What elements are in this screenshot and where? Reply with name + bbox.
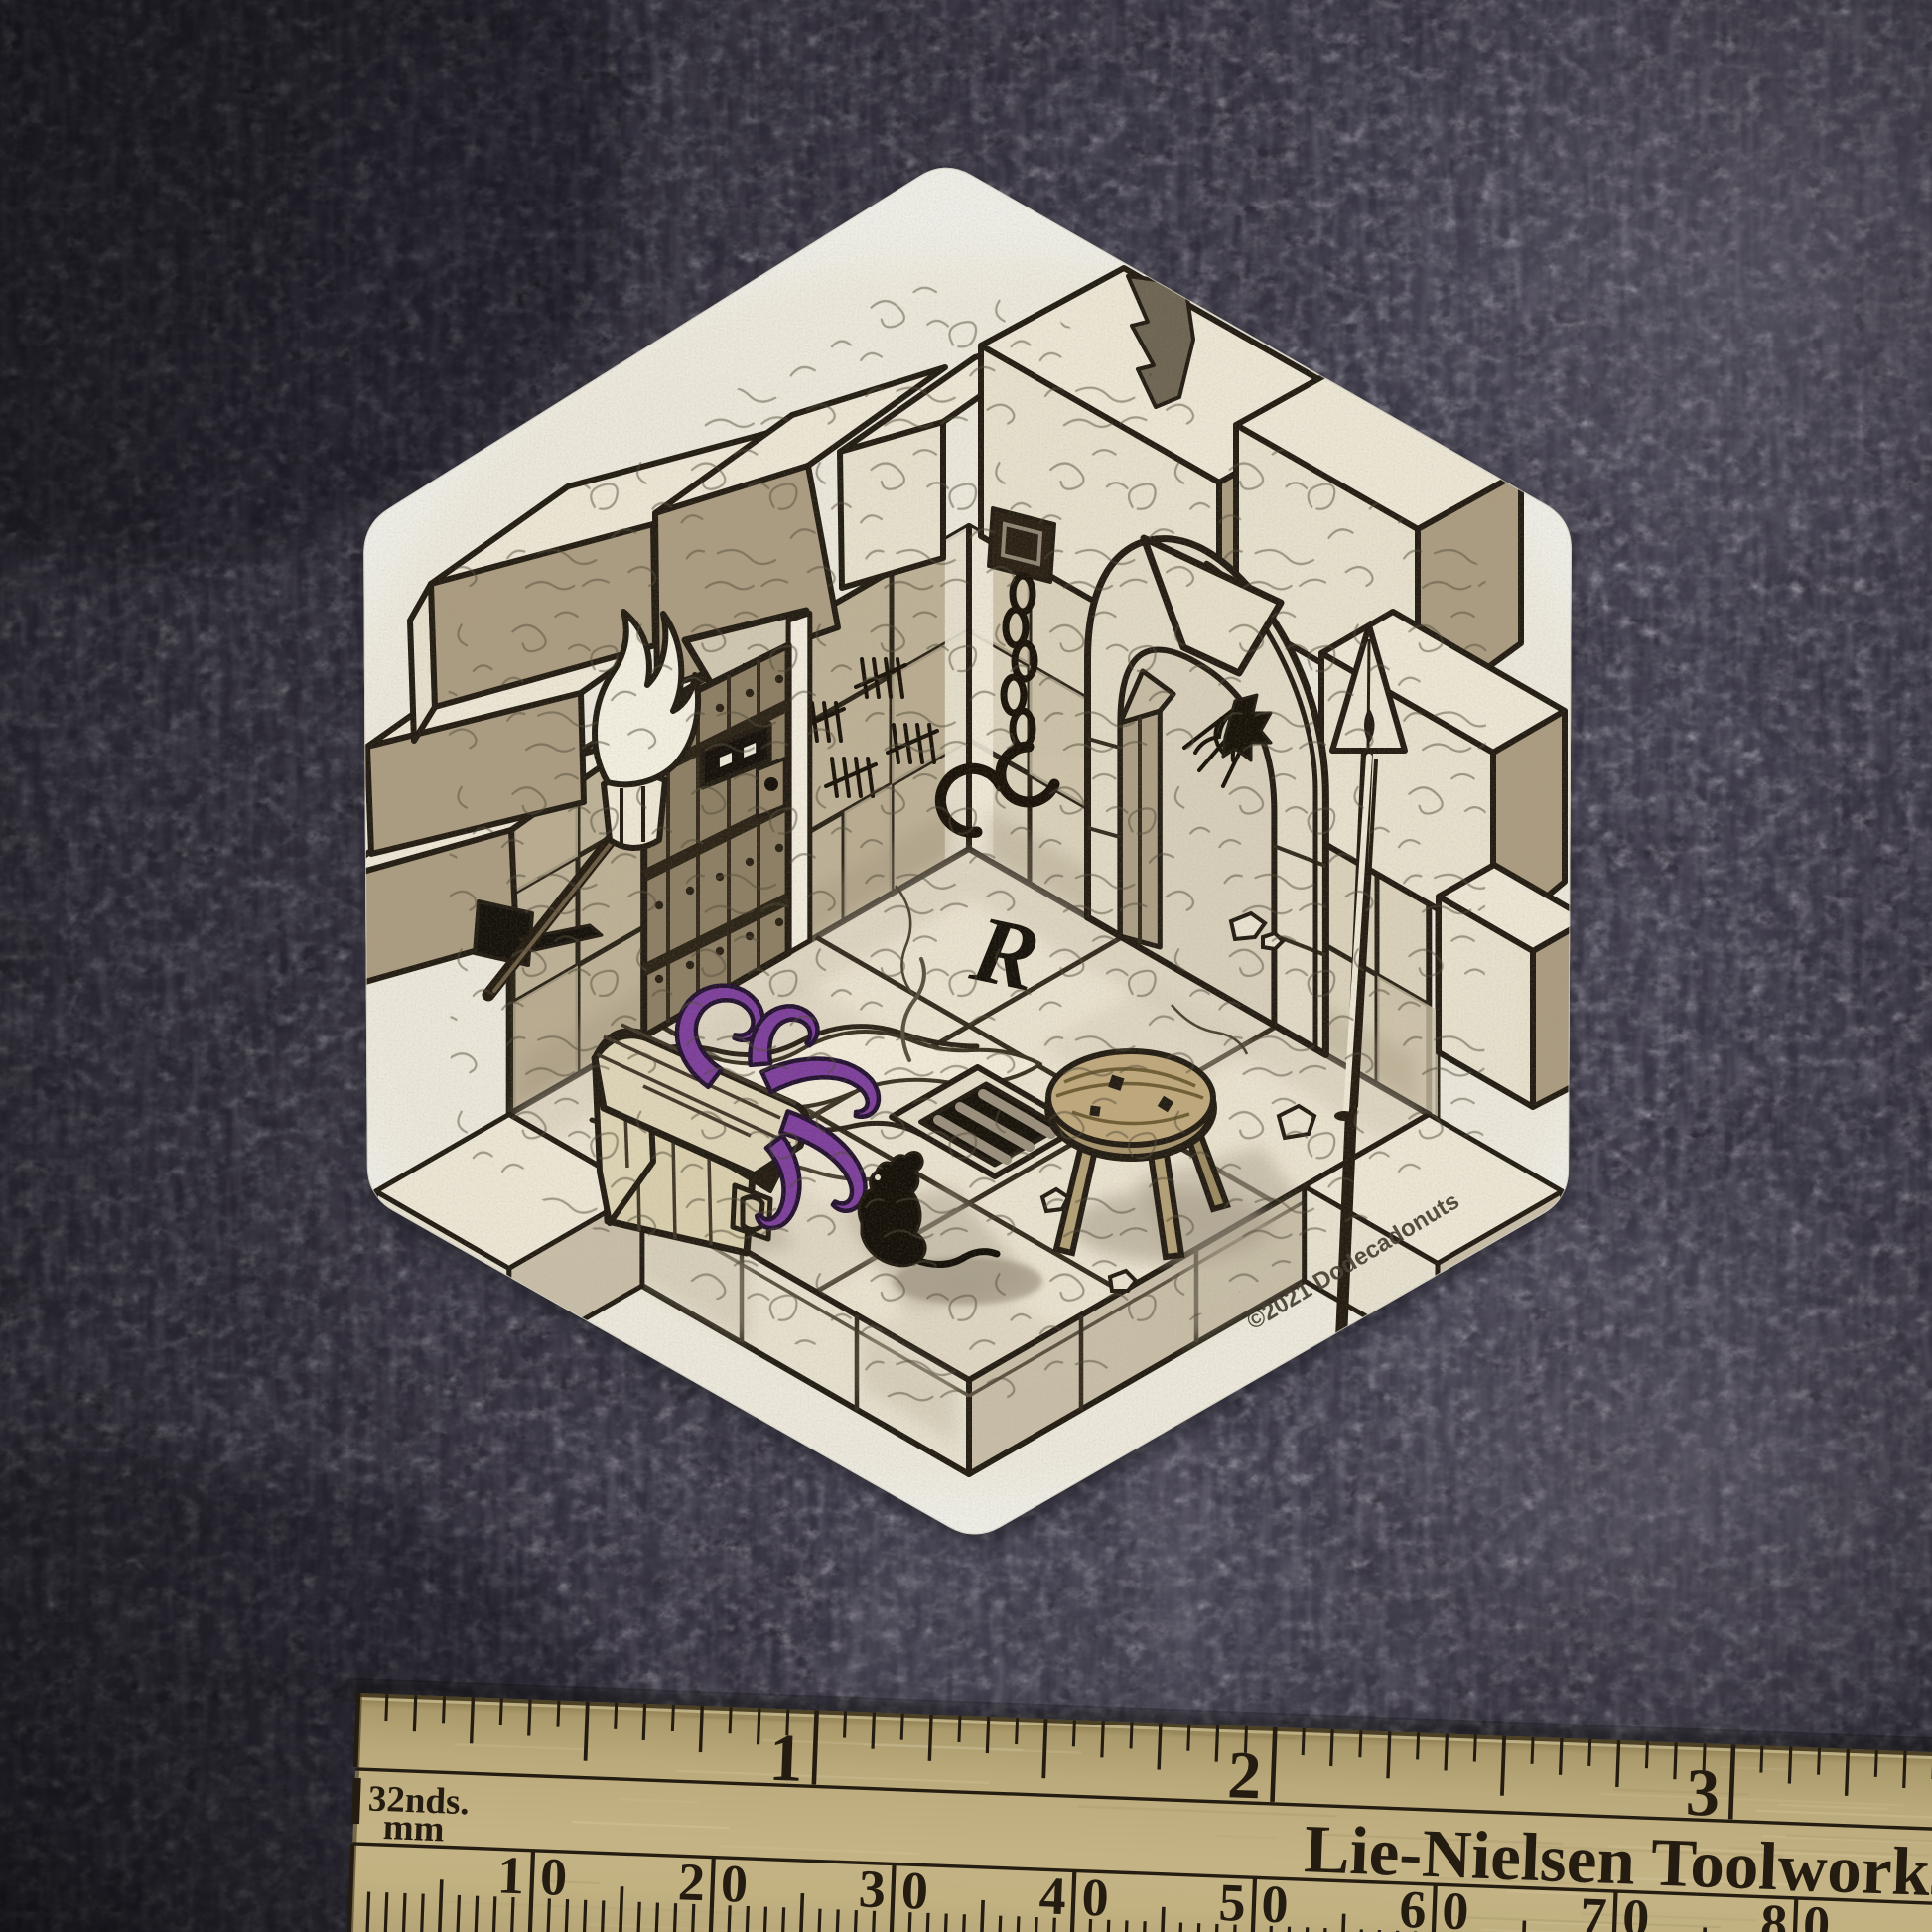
svg-text:2: 2	[677, 1852, 706, 1912]
svg-text:1: 1	[496, 1845, 525, 1905]
svg-text:3: 3	[858, 1859, 887, 1919]
svg-text:5: 5	[1218, 1872, 1247, 1932]
svg-text:0: 0	[1260, 1874, 1289, 1932]
svg-text:1: 1	[767, 1720, 804, 1796]
svg-text:2: 2	[1226, 1736, 1263, 1813]
svg-text:4: 4	[1038, 1865, 1067, 1926]
svg-text:3: 3	[1685, 1754, 1722, 1831]
svg-text:0: 0	[1802, 1894, 1831, 1932]
svg-text:0: 0	[539, 1847, 568, 1907]
svg-text:0: 0	[1081, 1867, 1110, 1928]
svg-text:7: 7	[1579, 1886, 1607, 1932]
svg-text:0: 0	[1441, 1880, 1469, 1932]
svg-text:0: 0	[900, 1861, 929, 1921]
svg-text:8: 8	[1759, 1893, 1788, 1932]
svg-text:6: 6	[1398, 1879, 1427, 1932]
svg-text:0: 0	[720, 1854, 749, 1914]
svg-text:0: 0	[1621, 1887, 1650, 1932]
